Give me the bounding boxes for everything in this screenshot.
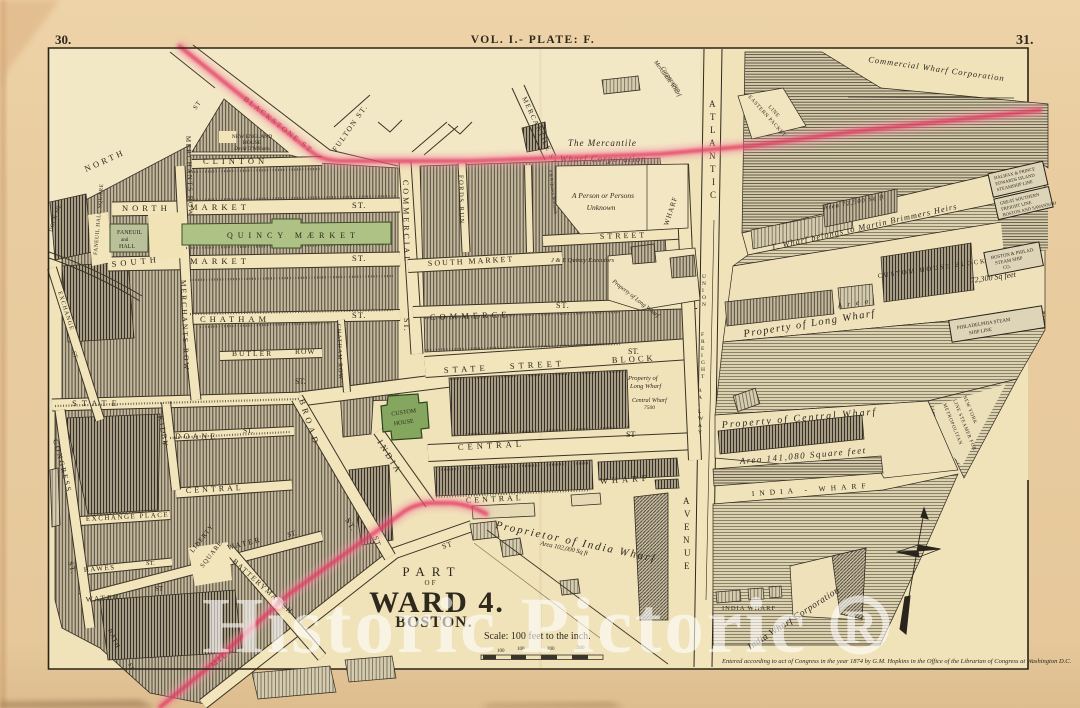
svg-text:A Person or Persons: A Person or Persons <box>571 191 634 200</box>
svg-text:30.: 30. <box>55 32 71 47</box>
svg-text:ST.: ST. <box>556 301 570 310</box>
svg-text:ST.: ST. <box>352 253 366 263</box>
svg-text:Long Wharf: Long Wharf <box>629 383 662 390</box>
svg-text:BUTLER: BUTLER <box>232 349 273 358</box>
svg-text:Historic Pictoric: Historic Pictoric <box>202 583 808 670</box>
svg-text:J & E Quincy Executors: J & E Quincy Executors <box>551 257 615 264</box>
svg-text:David O'Williams: David O'Williams <box>233 147 270 152</box>
svg-text:QUINCY MÆRKET: QUINCY MÆRKET <box>227 231 360 240</box>
svg-text:HOUSE: HOUSE <box>243 140 262 146</box>
svg-text:The Mercantile: The Mercantile <box>568 138 637 148</box>
svg-text:ST.: ST. <box>402 318 411 332</box>
svg-text:STREET: STREET <box>600 230 648 241</box>
svg-text:COMMERCIAL: COMMERCIAL <box>401 180 411 264</box>
svg-text:FANEUIL: FANEUIL <box>117 230 143 236</box>
svg-text:MARKET: MARKET <box>190 202 250 212</box>
svg-text:VOL. I.- PLATE: F.: VOL. I.- PLATE: F. <box>471 34 596 46</box>
svg-text:ST.: ST. <box>352 310 366 320</box>
svg-text:CHATHAM: CHATHAM <box>200 314 270 324</box>
svg-text:ST: ST <box>155 585 164 593</box>
svg-text:and: and <box>121 238 129 243</box>
svg-text:ST: ST <box>626 430 635 439</box>
svg-text:CLINTON: CLINTON <box>203 156 268 166</box>
svg-text:NORTH: NORTH <box>122 203 171 213</box>
svg-text:MARKET: MARKET <box>190 256 250 266</box>
svg-text:ST.: ST. <box>243 426 253 435</box>
svg-text:7500: 7500 <box>644 405 655 411</box>
svg-text:ST.: ST. <box>146 560 155 567</box>
svg-text:31.: 31. <box>1016 33 1034 48</box>
svg-text:Central Wharf: Central Wharf <box>632 397 668 404</box>
svg-text:DOANE: DOANE <box>175 432 218 441</box>
svg-text:ST.: ST. <box>352 200 366 210</box>
svg-text:ROW: ROW <box>295 347 316 356</box>
svg-text:R: R <box>843 601 879 654</box>
svg-text:HALL: HALL <box>119 244 135 250</box>
svg-text:FORDS RUN: FORDS RUN <box>457 175 465 225</box>
svg-text:ST.: ST. <box>628 347 639 356</box>
svg-text:Property of: Property of <box>627 375 659 382</box>
svg-text:Unknown: Unknown <box>587 203 616 212</box>
svg-text:PART: PART <box>402 564 461 579</box>
svg-text:STATE: STATE <box>72 398 122 408</box>
svg-text:ST.: ST. <box>295 377 306 386</box>
